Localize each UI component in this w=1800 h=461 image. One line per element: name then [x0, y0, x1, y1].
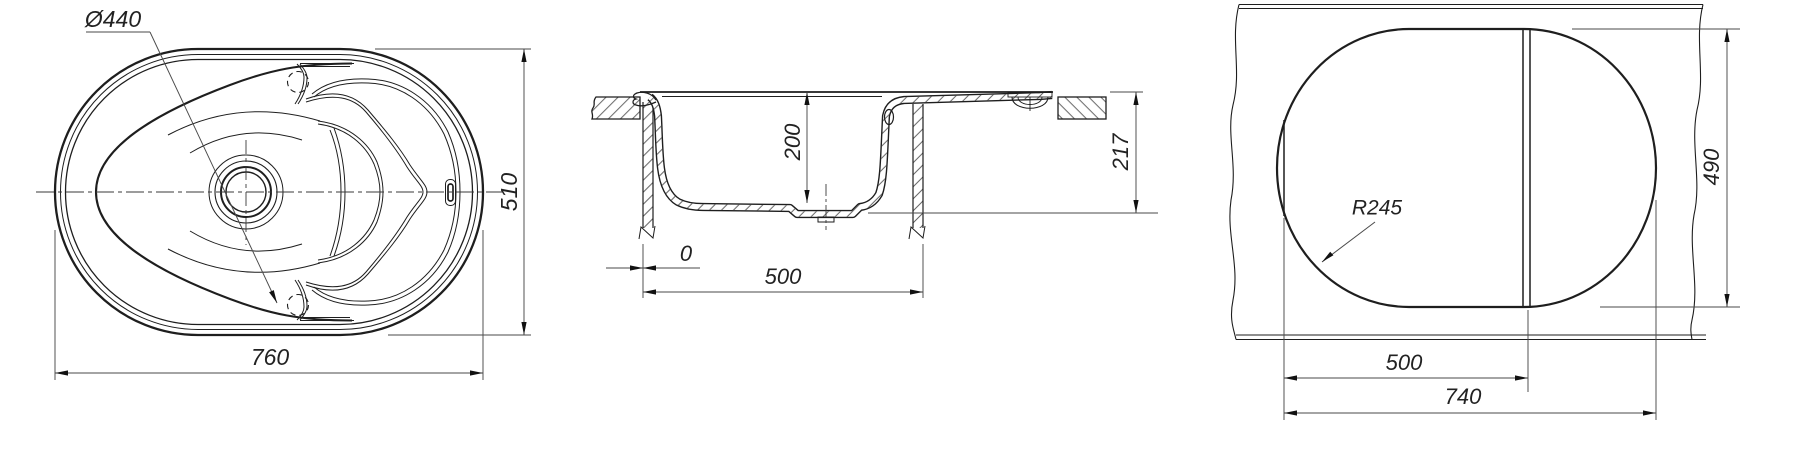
cutout-divider [1523, 30, 1530, 306]
top-view-arrows [55, 49, 527, 376]
dim-bowl-depth: 200 [780, 123, 805, 161]
cutout-dimensions [1284, 29, 1740, 420]
overflow-slot [446, 180, 456, 206]
sink-technical-drawing: Ø440 760 510 [0, 0, 1800, 461]
dim-corner-radius: R245 [1352, 197, 1403, 220]
cabinet-panel-left [639, 102, 655, 239]
section-view: 200 217 0 500 [592, 92, 1158, 298]
cutout-arrows [1284, 29, 1730, 416]
cutout-view: R245 490 500 740 [1230, 5, 1740, 421]
cabinet-panel-right [909, 104, 925, 239]
worktop-right [1058, 97, 1106, 119]
dim-cutout-length: 740 [1445, 384, 1482, 409]
dim-bowl-outer-width: 500 [765, 264, 802, 289]
worktop-sheet [1230, 5, 1706, 340]
dim-edge-offset: 0 [680, 241, 693, 266]
top-view: Ø440 760 510 [36, 6, 531, 380]
dim-bowl-diameter: Ø440 [84, 6, 141, 32]
dim-overall-width: 510 [496, 173, 522, 212]
sink-shell-section [650, 95, 1052, 214]
worktop-left [592, 97, 640, 119]
dim-overall-height: 217 [1108, 133, 1133, 171]
break-line-left [1230, 5, 1239, 340]
dim-overall-length: 760 [251, 344, 290, 370]
technical-drawing-sheet: Ø440 760 510 [0, 0, 1800, 461]
center-lines [36, 140, 502, 245]
cutout-outline [1277, 29, 1656, 307]
dim-cutout-height: 490 [1699, 148, 1724, 185]
dim-bowl-section-width: 500 [1386, 350, 1423, 375]
